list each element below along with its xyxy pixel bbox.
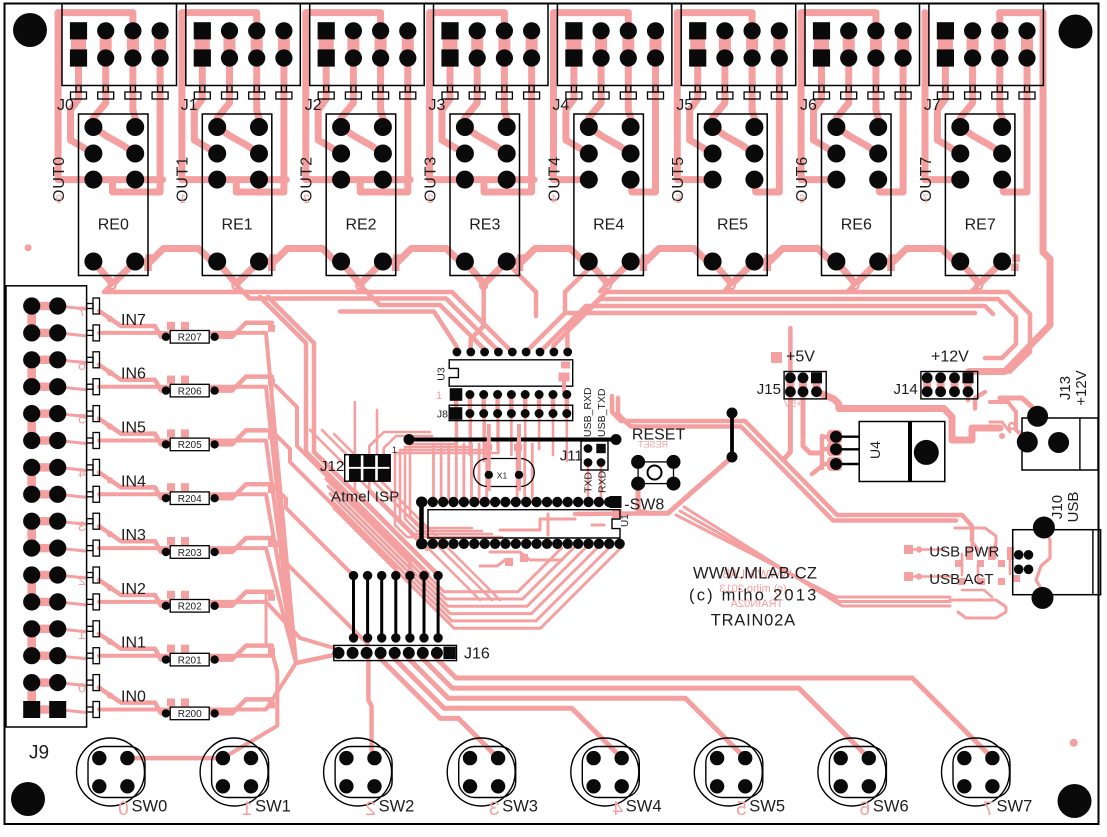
svg-text:RE3: RE3 (469, 217, 500, 234)
svg-text:IN3: IN3 (121, 527, 146, 544)
svg-text:WWW.MLAB.CZ: WWW.MLAB.CZ (693, 565, 817, 583)
svg-text:R206: R206 (178, 386, 202, 397)
svg-text:J8: J8 (437, 409, 448, 421)
svg-text:J4: J4 (552, 97, 569, 114)
svg-text:SW7: SW7 (997, 798, 1033, 816)
svg-text:USB_RXD: USB_RXD (582, 387, 594, 437)
svg-text:R203: R203 (178, 548, 202, 559)
svg-text:J3: J3 (429, 97, 446, 114)
svg-text:R207: R207 (178, 333, 202, 344)
svg-text:+5V: +5V (786, 349, 815, 366)
svg-text:TRAIN02A: TRAIN02A (730, 598, 783, 610)
svg-text:J9: J9 (29, 743, 49, 764)
svg-text:R201: R201 (178, 655, 202, 666)
svg-text:TRAIN02A: TRAIN02A (711, 612, 796, 630)
svg-text:J1: J1 (181, 97, 198, 114)
svg-text:RXD: RXD (597, 470, 609, 493)
svg-text:5: 5 (675, 192, 682, 206)
svg-text:4: 4 (78, 464, 86, 480)
svg-text:R205: R205 (178, 440, 202, 451)
svg-text:+12V: +12V (1073, 370, 1090, 405)
svg-text:J15: J15 (757, 381, 781, 398)
svg-text:RE1: RE1 (222, 217, 253, 234)
svg-text:U1: U1 (620, 514, 631, 527)
svg-text:0: 0 (118, 799, 129, 820)
svg-text:7: 7 (983, 799, 994, 820)
svg-text:SW2: SW2 (379, 798, 415, 816)
svg-text:J0: J0 (57, 97, 74, 114)
svg-text:J16: J16 (464, 646, 490, 663)
svg-text:IN5: IN5 (121, 420, 146, 437)
svg-text:5: 5 (736, 799, 747, 820)
svg-text:USB PWR: USB PWR (929, 544, 999, 561)
svg-text:7: 7 (922, 192, 929, 206)
svg-text:SW5: SW5 (749, 798, 785, 816)
svg-text:IN2: IN2 (121, 581, 146, 598)
svg-text:2: 2 (303, 192, 310, 206)
svg-text:J13: J13 (1057, 376, 1074, 400)
svg-text:3: 3 (78, 518, 86, 534)
svg-text:0: 0 (55, 192, 62, 206)
svg-text:+5V: +5V (784, 399, 802, 410)
svg-text:USB ACT: USB ACT (929, 571, 993, 588)
svg-text:Atmel ISP: Atmel ISP (331, 489, 400, 506)
svg-text:3: 3 (489, 799, 500, 820)
svg-text:U4: U4 (867, 441, 883, 459)
svg-text:R202: R202 (178, 602, 202, 613)
svg-text:J6: J6 (800, 97, 817, 114)
svg-text:RE6: RE6 (841, 217, 872, 234)
svg-text:IN0: IN0 (121, 689, 146, 706)
svg-text:-SW8: -SW8 (624, 497, 664, 514)
svg-text:RESET: RESET (637, 440, 668, 450)
svg-text:J11: J11 (560, 448, 583, 465)
svg-text:6: 6 (78, 357, 86, 373)
svg-text:RE4: RE4 (593, 217, 624, 234)
svg-text:2: 2 (365, 799, 376, 820)
svg-text:7: 7 (78, 303, 86, 319)
svg-text:J2: J2 (305, 97, 322, 114)
svg-text:RE7: RE7 (965, 217, 996, 234)
svg-text:IN6: IN6 (121, 366, 146, 383)
svg-text:6: 6 (798, 192, 805, 206)
svg-text:IN4: IN4 (121, 473, 146, 490)
svg-text:X1: X1 (497, 471, 508, 481)
svg-text:R200: R200 (178, 709, 202, 720)
svg-text:SW1: SW1 (255, 798, 291, 816)
svg-text:SW4: SW4 (626, 798, 662, 816)
svg-text:RE5: RE5 (717, 217, 748, 234)
svg-text:1: 1 (242, 799, 253, 820)
svg-text:6: 6 (860, 799, 871, 820)
svg-text:2: 2 (78, 572, 86, 588)
svg-text:J14: J14 (894, 381, 918, 398)
svg-text:IN7: IN7 (121, 312, 146, 329)
svg-text:SW0: SW0 (132, 798, 168, 816)
svg-text:RE0: RE0 (98, 217, 129, 234)
svg-text:5: 5 (78, 411, 86, 427)
svg-text:USB: USB (1065, 492, 1082, 523)
svg-text:J5: J5 (676, 97, 693, 114)
svg-text:1: 1 (392, 445, 397, 455)
svg-text:TXD: TXD (583, 472, 595, 493)
svg-text:4: 4 (612, 799, 623, 820)
svg-text:3: 3 (427, 192, 434, 206)
svg-text:+12V: +12V (931, 349, 969, 366)
svg-text:U3: U3 (436, 367, 448, 381)
svg-text:4: 4 (551, 192, 558, 206)
svg-text:IN1: IN1 (121, 635, 146, 652)
svg-text:J10: J10 (1049, 495, 1066, 519)
svg-text:1: 1 (179, 192, 186, 206)
svg-text:J7: J7 (924, 97, 941, 114)
svg-text:1: 1 (436, 390, 442, 402)
svg-text:USB_TXD: USB_TXD (596, 388, 608, 437)
svg-text:0: 0 (78, 680, 86, 696)
svg-text:SW3: SW3 (502, 798, 538, 816)
svg-text:RE2: RE2 (345, 217, 376, 234)
svg-text:SW6: SW6 (873, 798, 909, 816)
svg-text:R204: R204 (178, 494, 202, 505)
svg-text:1: 1 (78, 626, 86, 642)
svg-text:J12: J12 (320, 458, 344, 475)
